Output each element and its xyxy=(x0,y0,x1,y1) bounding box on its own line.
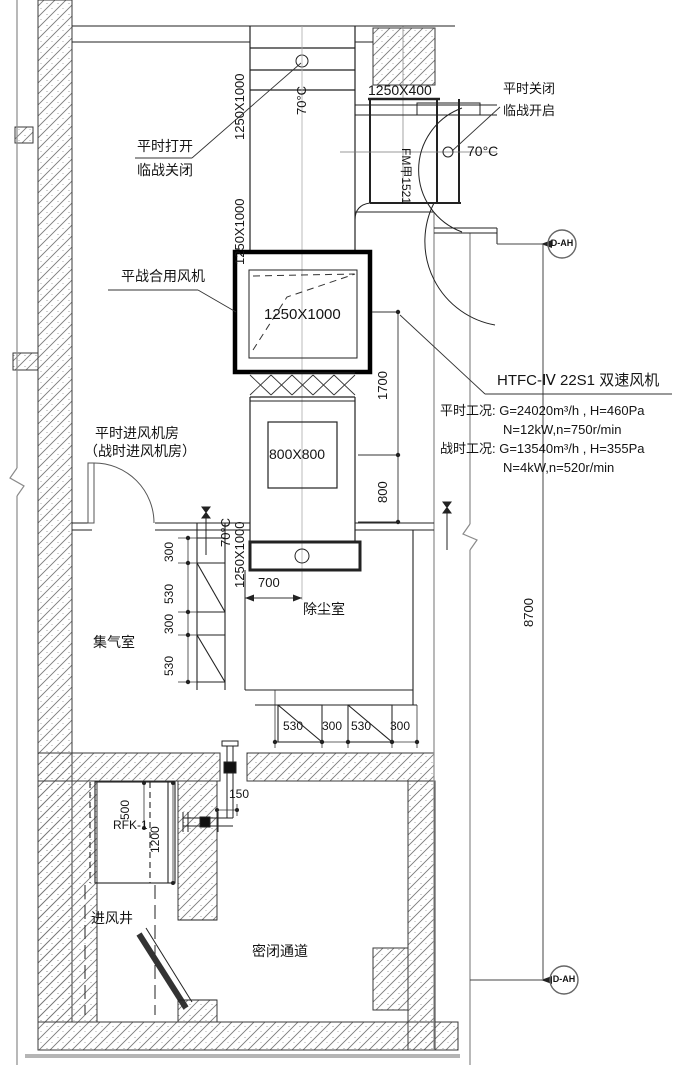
dim-bottom-530b: 530 xyxy=(351,720,371,732)
riser-top-temp-label: 70°C xyxy=(295,86,308,115)
callout-normally-closed-line2: 临战开启 xyxy=(503,104,555,117)
dim-1700-label: 1700 xyxy=(376,371,389,400)
dim-500-label: 500 xyxy=(119,800,131,820)
flex-connector xyxy=(250,375,355,395)
filter-label: RFK-1 xyxy=(113,819,148,831)
room-door xyxy=(88,463,154,523)
riser-low-size-label: 1250X1000 xyxy=(233,521,246,588)
riser-mid-size-label: 1250X1000 xyxy=(233,198,246,265)
fan-spec-normal: 平时工况: G=24020m³/h , H=460Pa xyxy=(440,404,644,417)
riser-top-size-label: 1250X1000 xyxy=(233,73,246,140)
dim-800-label: 800 xyxy=(376,481,389,503)
rfk-filter xyxy=(90,781,175,885)
fan-unit xyxy=(235,252,370,401)
dust-room xyxy=(245,530,419,748)
callout-leaders xyxy=(108,63,672,394)
door-swing-arc xyxy=(419,108,462,232)
fan-room-label-line2: （战时进风机房） xyxy=(84,444,196,458)
door-swing-arc xyxy=(425,203,495,325)
dim-left-530b: 530 xyxy=(163,656,175,676)
dim-8700-label: 8700 xyxy=(522,598,535,627)
blast-door-label: FM甲1521 xyxy=(400,148,412,204)
dim-bottom-300b: 300 xyxy=(390,720,410,732)
dust-room-label: 除尘室 xyxy=(303,602,345,616)
fan-callout-label: 平战合用风机 xyxy=(121,269,205,283)
dim-bottom-530a: 530 xyxy=(283,720,303,732)
dim-1200-label: 1200 xyxy=(149,826,161,853)
callout-normally-closed-line1: 平时关闭 xyxy=(503,82,555,95)
branch-duct-size-label: 1250X400 xyxy=(368,83,432,97)
axis-bubble-top-label: D-AH xyxy=(548,239,576,248)
lower-duct xyxy=(250,397,360,570)
airtight-passage-label: 密闭通道 xyxy=(252,944,308,958)
shaft-louvre-bar xyxy=(139,934,186,1008)
fan-spec-war-2: N=4kW,n=520r/min xyxy=(503,461,614,474)
plenum-room-label: 集气室 xyxy=(93,635,135,649)
branch-temp-label: 70°C xyxy=(467,144,498,158)
dim-left-300a: 300 xyxy=(163,542,175,562)
dim-700-label: 700 xyxy=(258,576,280,589)
dim-bottom-300a: 300 xyxy=(322,720,342,732)
louvre-wall-left xyxy=(178,523,225,690)
dim-150-label: 150 xyxy=(229,788,249,800)
branch-duct-door xyxy=(340,99,497,325)
axis-bubble-bottom-label: D-AH xyxy=(550,975,578,984)
fan-spec-war: 战时工况: G=13540m³/h , H=355Pa xyxy=(440,442,644,455)
fan-model-label: HTFC-Ⅳ 22S1 双速风机 xyxy=(497,373,659,388)
dim-left-530a: 530 xyxy=(163,584,175,604)
fan-room-label-line1: 平时进风机房 xyxy=(95,426,179,440)
box-duct-size-label: 800X800 xyxy=(269,447,325,461)
intake-shaft-label: 进风井 xyxy=(91,911,133,925)
callout-normally-open-line2: 临战关闭 xyxy=(137,163,193,177)
fan-duct-size-label: 1250X1000 xyxy=(264,307,341,322)
drawing-linework xyxy=(0,0,675,1065)
dim-left-300b: 300 xyxy=(163,614,175,634)
riser-low-temp-label: 70°C xyxy=(219,518,232,547)
callout-normally-open-line1: 平时打开 xyxy=(137,139,193,153)
fan-spec-normal-2: N=12kW,n=750r/min xyxy=(503,423,622,436)
hvac-plan-drawing: 平时打开 临战关闭 1250X400 平时关闭 临战开启 70°C 平战合用风机… xyxy=(0,0,675,1065)
